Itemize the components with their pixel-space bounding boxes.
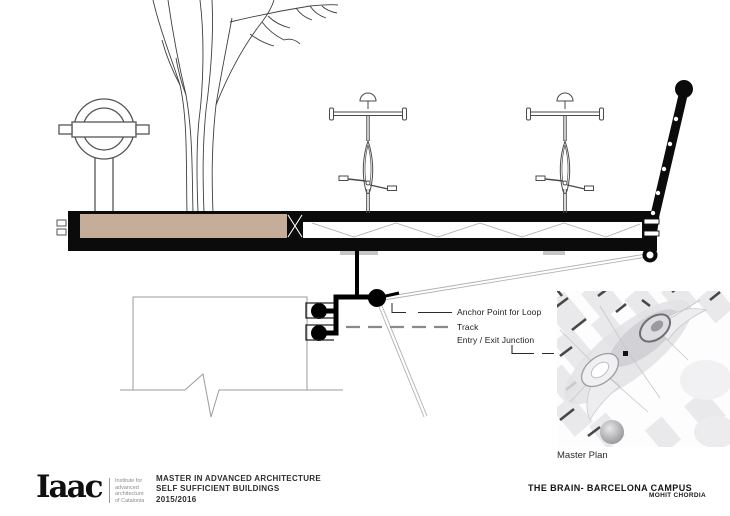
roller-2 [312,326,327,341]
roller-1 [312,304,327,319]
project-author: MOHIT CHORDIA [649,492,706,499]
wheel-fixture [59,99,149,213]
bicycle-2 [527,93,604,213]
platform-deck [57,211,657,255]
program-line: 2015/2016 [156,495,321,505]
mast-pivot [645,250,656,261]
master-plan-caption: Master Plan [557,450,608,461]
soil-fill [80,214,287,238]
iaac-logo: Iaac [36,472,102,502]
truss-web [312,223,640,237]
institute-line: of Catalonia [115,498,144,505]
sphere-building [600,420,624,444]
tree-elevation [153,0,338,213]
section-drawing [0,0,730,516]
logo-divider [109,478,110,503]
junction-marker [623,351,628,356]
track-label: Track [457,322,478,332]
master-plan-map [544,278,730,454]
program-line: MASTER IN ADVANCED ARCHITECTURE [156,474,321,484]
program-title-block: MASTER IN ADVANCED ARCHITECTURE SELF SUF… [156,474,321,505]
entry-exit-label: Entry / Exit Junction [457,335,534,345]
program-line: SELF SUFFICIENT BUILDINGS [156,484,321,494]
institute-line: Institute for [115,478,144,485]
break-symbol [185,374,219,417]
presentation-sheet: Anchor Point for Loop Track Entry / Exit… [0,0,730,516]
entry-leader [512,345,534,354]
anchor-leader [392,303,452,313]
wall-section [120,297,343,417]
mast [644,80,693,261]
anchor-point-label: Anchor Point for Loop [457,307,541,317]
bicycle-1 [330,93,407,213]
institute-name: Institute for advanced architecture of C… [115,478,144,504]
institute-line: architecture [115,491,144,498]
